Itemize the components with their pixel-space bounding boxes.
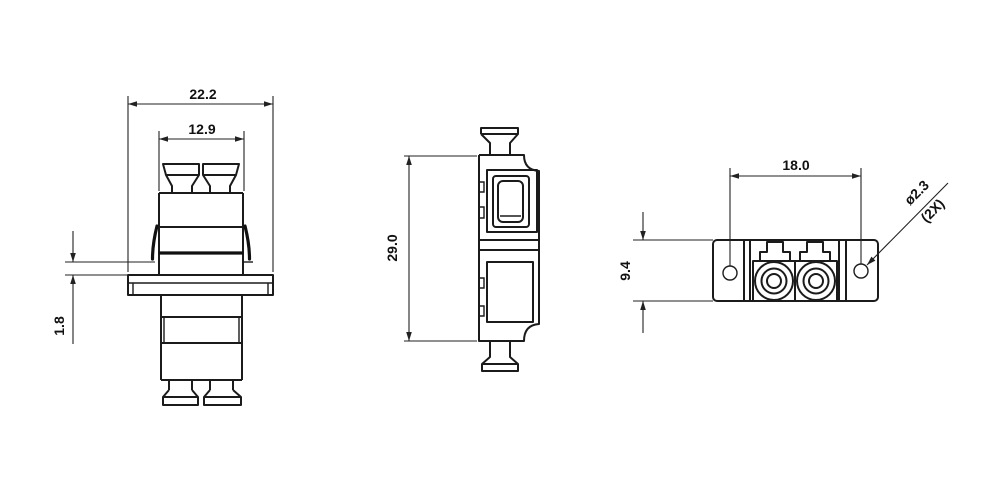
mounting-hole-left: [723, 266, 737, 280]
lc-port-left-mid-circle: [762, 269, 787, 294]
front-hook-left: [153, 226, 158, 259]
dim-front-flange-width: 22.2: [128, 86, 273, 272]
dim-label-side-body-height: 29.0: [384, 234, 400, 261]
callout-label-hole-quantity: (2X): [917, 195, 947, 225]
dim-label-front-body-width: 12.9: [188, 121, 215, 137]
engineering-drawing: 22.2 12.9 1.8: [0, 0, 1000, 500]
dim-front-body-width: 12.9: [159, 121, 244, 191]
dim-front-panel-gap: 1.8: [51, 231, 155, 344]
lc-latch-tab-left: [760, 242, 790, 261]
side-lower-window: [487, 262, 533, 322]
dim-label-top-flange-height: 9.4: [617, 261, 633, 281]
dim-label-top-hole-spacing: 18.0: [782, 157, 809, 173]
front-foot-right: [204, 390, 241, 405]
dim-label-front-panel-gap: 1.8: [51, 316, 67, 336]
side-bottom-knob: [482, 341, 518, 371]
side-flange-band: [479, 240, 539, 250]
side-view: 29.0: [384, 128, 539, 371]
front-lower-body: [161, 295, 242, 380]
front-body-outline: [159, 193, 243, 275]
front-foot-left: [163, 390, 198, 405]
front-lower-inset: [164, 317, 239, 343]
dim-label-front-flange-width: 22.2: [189, 86, 216, 102]
callout-hole-diameter: ø2.3 (2X): [867, 177, 948, 265]
drawing-stage: 22.2 12.9 1.8: [0, 0, 1000, 500]
front-bottom-stems: [169, 380, 233, 390]
lc-port-right-inner-circle: [809, 274, 823, 288]
lc-port-right-mid-circle: [804, 269, 829, 294]
front-top-tab-left: [163, 164, 199, 193]
lc-latch-tab-right: [800, 242, 830, 261]
lc-port-left-housing: [753, 261, 795, 301]
top-view: 18.0 9.4 ø2.3 (2X): [617, 157, 948, 333]
front-view: 22.2 12.9 1.8: [51, 86, 273, 405]
dim-top-flange-height: 9.4: [617, 212, 713, 333]
front-hook-right: [245, 226, 250, 259]
lc-port-right-housing: [795, 261, 837, 301]
mounting-hole-right: [854, 264, 868, 278]
side-top-knob: [481, 128, 518, 155]
front-top-tab-right: [203, 164, 239, 193]
front-flange-step: [128, 283, 273, 295]
lc-port-left-inner-circle: [767, 274, 781, 288]
dim-side-body-height: 29.0: [384, 156, 477, 341]
front-flange: [128, 275, 273, 295]
